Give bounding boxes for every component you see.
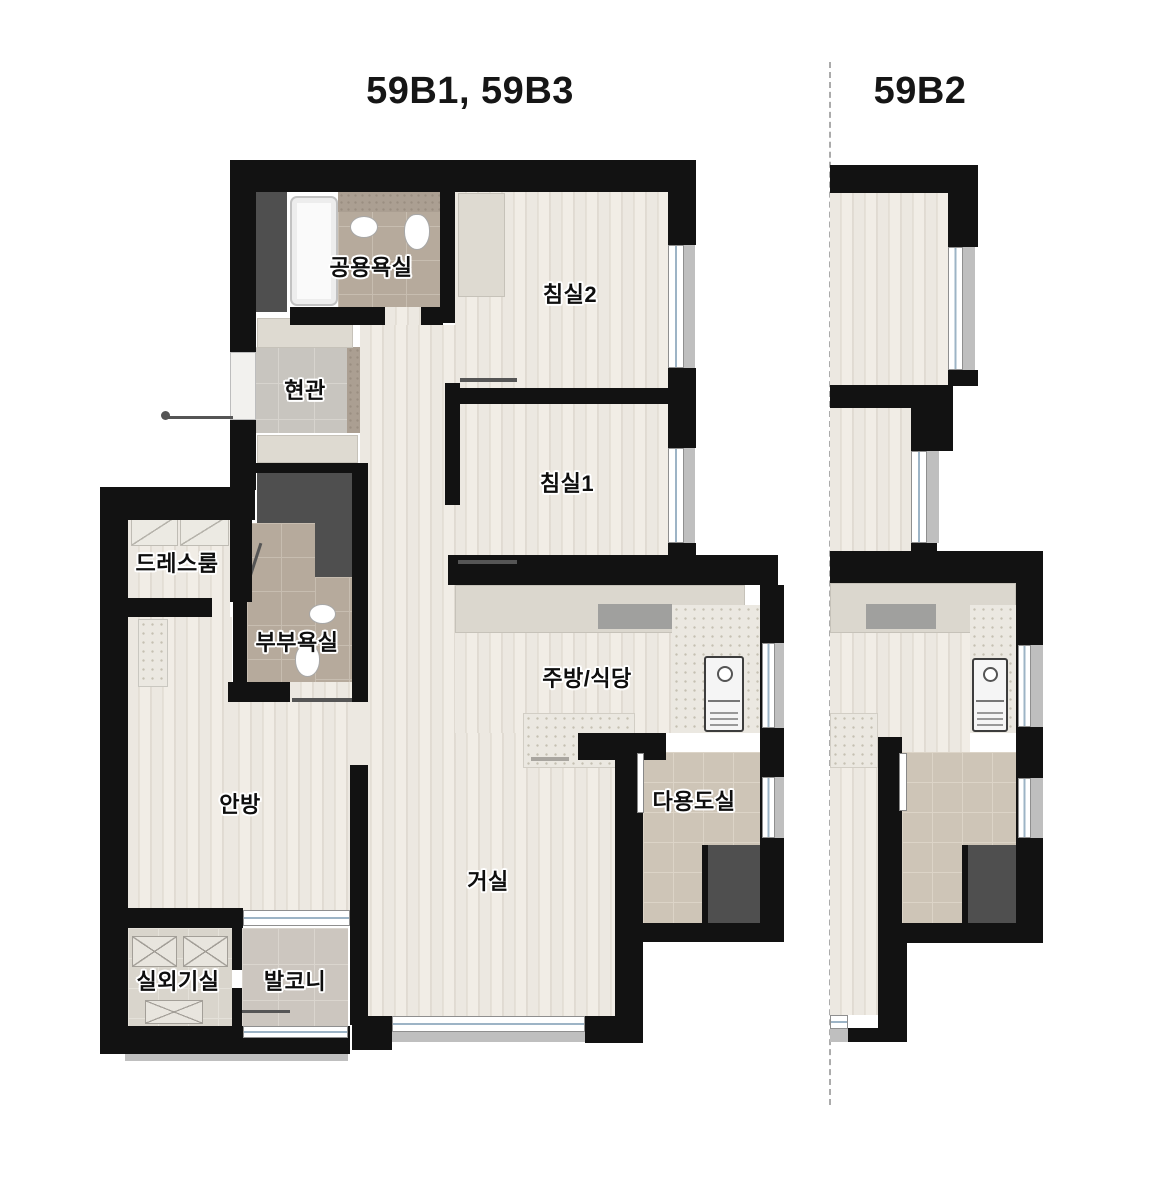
ac-unit-2 <box>183 936 228 967</box>
b2-refrigerator-door-line <box>976 700 1004 702</box>
b2-bedroom2-window <box>948 247 963 370</box>
wall <box>352 1016 392 1050</box>
utility-window-sill <box>775 777 784 838</box>
washer-utility <box>708 845 762 923</box>
label-living: 거실 <box>467 864 508 896</box>
label-utility: 다용도실 <box>653 784 736 816</box>
wall <box>578 733 666 760</box>
label-entrance: 현관 <box>284 373 325 405</box>
wall <box>352 463 368 682</box>
wall <box>233 602 247 687</box>
wall <box>230 192 256 352</box>
refrigerator-dial <box>717 666 733 682</box>
label-bathroom-common: 공용욕실 <box>330 250 413 282</box>
refrigerator-grill-2 <box>710 718 738 720</box>
refrigerator-grill-1 <box>710 712 738 714</box>
living-window <box>392 1016 585 1032</box>
unit-title-right: 59B2 <box>820 70 1020 113</box>
b2-refrigerator-dial <box>983 667 998 682</box>
wall <box>760 585 784 942</box>
bedroom2-door-leaf <box>460 378 517 382</box>
wall <box>228 682 290 702</box>
sink-common <box>350 216 378 238</box>
floorplan-canvas: 59B1, 59B3 59B2 <box>0 0 1160 1200</box>
wall <box>911 385 953 451</box>
kitchen-island-handle <box>531 757 569 761</box>
living-window-sill <box>392 1032 585 1042</box>
wall <box>230 160 696 192</box>
b2-utility-window <box>1018 778 1031 838</box>
kitchen-window-sill <box>775 643 784 728</box>
b2-bedroom2-floor <box>830 193 948 385</box>
b2-washer-frame <box>962 845 968 923</box>
unit-title-left: 59B1, 59B3 <box>250 70 690 113</box>
bathroom-storage-dark <box>253 192 287 312</box>
label-ac-room: 실외기실 <box>137 964 220 996</box>
b2-refrigerator-grill-2 <box>977 718 1003 720</box>
label-bathroom-master: 부부욕실 <box>256 625 339 657</box>
kitchen-window <box>762 643 775 728</box>
entrance-mat <box>347 347 360 433</box>
bedroom1-window-sill <box>684 448 695 543</box>
master-bedroom-dresser <box>138 619 168 687</box>
entry-door-opening <box>230 352 256 420</box>
label-bedroom1: 침실1 <box>540 466 594 498</box>
label-bedroom2: 침실2 <box>543 277 597 309</box>
entry-door-hinge <box>161 411 170 420</box>
ac-unit-1 <box>132 936 177 967</box>
wall <box>878 930 907 1042</box>
label-balcony: 발코니 <box>264 964 326 996</box>
utility-door-leaf <box>637 753 644 813</box>
wall <box>440 192 455 323</box>
b2-utility-door-leaf <box>899 753 907 811</box>
wall <box>848 1028 907 1042</box>
storage-dark-right <box>315 523 352 577</box>
bathroom-common-tile-strip <box>338 192 443 212</box>
wall <box>350 765 368 1025</box>
balcony-door-leaf <box>242 1010 290 1013</box>
wall <box>230 420 256 490</box>
cooktop <box>598 604 672 629</box>
utility-window <box>762 777 775 838</box>
b2-bedroom1-floor <box>830 408 911 551</box>
wall <box>830 551 1043 583</box>
wall <box>668 192 696 245</box>
label-kitchen: 주방/식당 <box>542 661 632 693</box>
b2-living-window-sill <box>830 1029 848 1042</box>
refrigerator-grill-3 <box>710 724 738 726</box>
washer-frame <box>702 845 708 923</box>
bedroom2-window <box>668 245 684 368</box>
b2-kitchen-window <box>1018 645 1031 727</box>
b2-living-floor <box>830 752 878 1015</box>
b2-cooktop <box>866 604 936 629</box>
storage-dark-upper <box>257 470 352 523</box>
wall <box>100 908 243 928</box>
wall <box>668 543 696 567</box>
b2-refrigerator-grill-1 <box>977 712 1003 714</box>
exterior-sill <box>125 1054 348 1061</box>
bedroom2-window-sill <box>684 245 695 368</box>
wall <box>250 463 368 473</box>
wall <box>668 368 696 448</box>
bedroom1-window <box>668 448 684 543</box>
bathroom-common-door-gap <box>385 307 421 325</box>
wall <box>352 682 368 702</box>
toilet-common <box>404 214 430 250</box>
b2-bedroom1-window-sill <box>927 451 939 543</box>
b2-bedroom2-window-sill <box>963 247 975 370</box>
wall <box>100 487 128 1054</box>
entrance-lower-closet <box>257 435 358 463</box>
b2-kitchen-island <box>830 713 878 768</box>
wall <box>948 370 978 386</box>
b2-refrigerator <box>972 658 1008 732</box>
refrigerator <box>704 656 744 732</box>
label-master-bedroom: 안방 <box>219 787 260 819</box>
refrigerator-door-line <box>708 700 740 702</box>
bedroom2-closet <box>458 193 505 297</box>
b2-washer <box>968 845 1016 923</box>
b2-kitchen-window-sill <box>1031 645 1043 727</box>
wall <box>232 988 242 1028</box>
sink-master <box>309 604 336 624</box>
wall <box>460 388 696 404</box>
entry-door-leaf <box>165 416 233 419</box>
wall <box>232 928 242 970</box>
b2-refrigerator-grill-3 <box>977 724 1003 726</box>
b2-utility-window-sill <box>1031 778 1043 838</box>
bedroom1-door-leaf <box>458 560 517 564</box>
wall <box>100 598 212 617</box>
master-bedroom-balcony-window <box>243 910 350 926</box>
wall <box>230 490 252 602</box>
b2-living-window <box>830 1015 848 1029</box>
master-bedroom-door-leaf <box>292 698 352 702</box>
wall <box>445 383 460 505</box>
wall <box>1016 583 1043 943</box>
b2-bedroom1-window <box>911 451 927 543</box>
balcony-window <box>243 1026 348 1038</box>
label-dressroom: 드레스룸 <box>136 546 219 578</box>
wall <box>948 165 978 247</box>
ac-unit-3 <box>145 1000 203 1024</box>
